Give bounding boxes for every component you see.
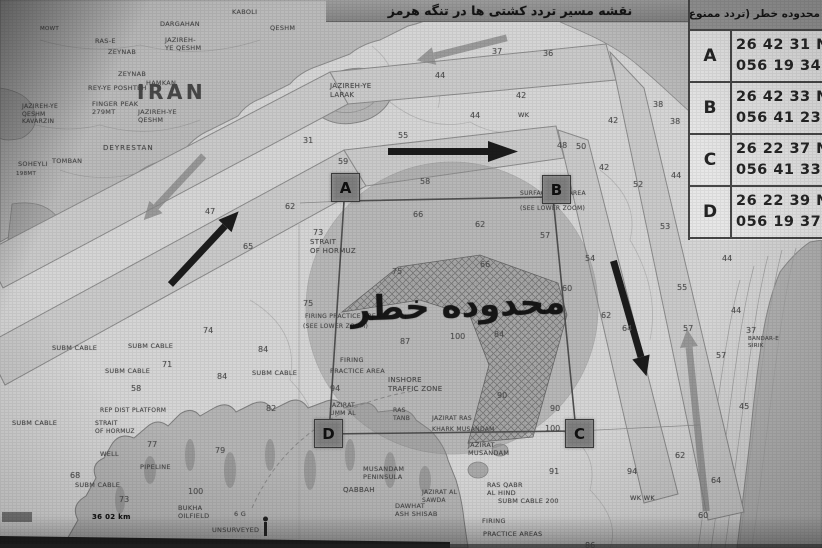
map-label: BUKHA OILFIELD (178, 504, 209, 520)
danger-zone-label: محدوده خطر (347, 282, 568, 330)
coordinates-table-rows: A 26 42 31 N 056 19 34 E B 26 42 33 N 05… (690, 31, 822, 239)
latitude-value: 26 22 37 N (736, 139, 822, 160)
map-label: KHARK MUSANDAM (432, 426, 495, 434)
map-label: JAZIRAT RAS (432, 415, 472, 423)
depth-sounding: 57 (716, 351, 726, 360)
depth-sounding: 62 (675, 451, 685, 460)
depth-sounding: 77 (147, 440, 157, 449)
point-coordinates: 26 22 37 N 056 41 33 E (732, 135, 822, 185)
map-label: 6 G (234, 510, 246, 518)
map-label: JAZIREH-YE LARAK (330, 82, 372, 100)
depth-sounding: 68 (70, 471, 80, 480)
depth-sounding: 58 (420, 177, 430, 186)
depth-sounding: 44 (470, 111, 480, 120)
map-label: 198MT (16, 171, 36, 178)
map-label: WELL (100, 450, 119, 458)
depth-sounding: 62 (285, 202, 295, 211)
depth-sounding: 64 (711, 476, 721, 485)
depth-sounding: 90 (497, 391, 507, 400)
map-label: DARGAHAN (160, 20, 200, 28)
depth-sounding: 71 (162, 360, 172, 369)
nautical-chart-photo: 5958666257737566604762657574848494444244… (0, 0, 822, 548)
map-label: DAWHAT ASH SHISAB (395, 502, 438, 518)
map-label: SUBM CABLE (75, 481, 120, 489)
map-label: SUBM CABLE 200 (498, 497, 559, 505)
depth-sounding: 100 (188, 487, 203, 496)
map-label: SUBM CABLE (12, 419, 57, 427)
depth-sounding: 54 (585, 254, 595, 263)
depth-sounding: 66 (413, 210, 423, 219)
depth-sounding: 47 (205, 207, 215, 216)
depth-sounding: 55 (398, 131, 408, 140)
latitude-value: 26 42 31 N (736, 35, 822, 56)
depth-sounding: 31 (303, 136, 313, 145)
depth-sounding: 42 (516, 91, 526, 100)
point-letter: D (690, 187, 732, 237)
depth-sounding: 87 (400, 337, 410, 346)
map-label: SOHEYLI (18, 160, 48, 168)
map-label: BANDAR-E SIRIK (748, 336, 779, 350)
map-label: JAZIRAT MUSANDAM (468, 441, 509, 457)
depth-sounding: 58 (131, 384, 141, 393)
map-label: SUBM CABLE (128, 342, 173, 350)
coordinates-table-row: D 26 22 39 N 056 19 37 E (690, 187, 822, 239)
coordinates-table: محدوده خطر (تردد ممنوع) A 26 42 31 N 056… (688, 0, 822, 240)
coordinates-table-row: C 26 22 37 N 056 41 33 E (690, 135, 822, 187)
map-label: WK WK (630, 494, 655, 502)
corner-marker: D (314, 419, 343, 448)
latitude-value: 26 22 39 N (736, 191, 822, 212)
map-label: INSHORE TRAFFIC ZONE (388, 376, 442, 394)
map-label: KABOLI (232, 8, 257, 16)
depth-sounding: 64 (622, 324, 632, 333)
map-label: MOWT (40, 26, 59, 33)
coordinates-table-row: B 26 42 33 N 056 41 23 E (690, 83, 822, 135)
depth-sounding: 86 (585, 541, 595, 548)
map-label: SUBM CABLE (252, 369, 297, 377)
depth-sounding: 73 (119, 495, 129, 504)
depth-sounding: 57 (540, 231, 550, 240)
depth-sounding: 94 (627, 467, 637, 476)
depth-sounding: 84 (494, 330, 504, 339)
map-label: QABBAH (343, 486, 375, 495)
depth-sounding: 55 (677, 283, 687, 292)
depth-sounding: 45 (739, 402, 749, 411)
map-label: JAZIREH-YE QESHM (138, 108, 177, 124)
depth-sounding: 38 (670, 117, 680, 126)
depth-sounding: 37 (492, 47, 502, 56)
map-label: QESHM (270, 24, 295, 32)
map-label: SUBM CABLE (105, 367, 150, 375)
map-label: JAZIRAT UMM AL (330, 402, 356, 417)
depth-sounding: 62 (601, 311, 611, 320)
map-label: PIPELINE (140, 463, 171, 471)
depth-sounding: 60 (698, 511, 708, 520)
point-letter: B (690, 83, 732, 133)
map-label: DEYRESTAN (103, 144, 154, 153)
map-label: STRAIT OF HORMUZ (95, 420, 135, 435)
map-label: PRACTICE AREA (330, 367, 385, 375)
map-label: (SEE LOWER ZOOM) (520, 205, 585, 213)
map-label: REY-YE POSHTEH (88, 84, 147, 92)
depth-sounding: 91 (549, 467, 559, 476)
depth-sounding: 44 (731, 306, 741, 315)
corner-marker: C (565, 419, 594, 448)
longitude-value: 056 19 34 E (736, 56, 822, 77)
coordinates-table-header: محدوده خطر (تردد ممنوع) (690, 0, 822, 31)
depth-sounding: 62 (475, 220, 485, 229)
corner-marker: A (331, 173, 360, 202)
depth-sounding: 52 (633, 180, 643, 189)
map-label: RAS TANB (393, 407, 410, 422)
depth-sounding: 44 (722, 254, 732, 263)
depth-sounding: 36 (543, 49, 553, 58)
map-label: ZEYNAB (108, 48, 136, 56)
map-label: WK (518, 111, 529, 119)
longitude-value: 056 41 23 E (736, 108, 822, 129)
map-label: JAZIRAT AL SAWDA (422, 489, 457, 504)
depth-sounding: 100 (545, 424, 560, 433)
depth-sounding: 90 (550, 404, 560, 413)
map-label: FIRING (340, 356, 364, 364)
map-label: JAZIREH-YE QESHM KAVARZIN (22, 103, 58, 126)
depth-sounding: 100 (450, 332, 465, 341)
longitude-value: 056 41 33 E (736, 160, 822, 181)
map-label: MUSANDAM PENINSULA (363, 465, 404, 481)
depth-sounding: 65 (243, 242, 253, 251)
depth-sounding: 73 (313, 228, 323, 237)
map-label: ZEYNAB (118, 70, 146, 78)
depth-sounding: 57 (683, 324, 693, 333)
depth-sounding: 50 (576, 142, 586, 151)
depth-sounding: 38 (653, 100, 663, 109)
map-label: JAZIREH- YE QESHM (165, 36, 201, 52)
depth-sounding: 42 (608, 116, 618, 125)
map-label: REP DIST PLATFORM (100, 407, 166, 415)
depth-sounding: 84 (258, 345, 268, 354)
longitude-value: 056 19 37 E (736, 212, 822, 233)
point-letter: C (690, 135, 732, 185)
map-label: PRACTICE AREAS (483, 530, 543, 538)
map-label: FIRING (482, 517, 506, 525)
map-label: RAS-E (95, 37, 116, 45)
latitude-value: 26 42 33 N (736, 87, 822, 108)
depth-sounding: 82 (266, 404, 276, 413)
depth-sounding: 42 (599, 163, 609, 172)
depth-sounding: 66 (480, 260, 490, 269)
depth-sounding: 84 (217, 372, 227, 381)
point-coordinates: 26 22 39 N 056 19 37 E (732, 187, 822, 237)
depth-sounding: 44 (671, 171, 681, 180)
map-label: UNSURVEYED (212, 526, 259, 534)
map-label: STRAIT OF HORMUZ (310, 238, 356, 256)
depth-sounding: 75 (303, 299, 313, 308)
depth-sounding: 59 (338, 157, 348, 166)
point-letter: A (690, 31, 732, 81)
map-label: FINGER PEAK 279MT (92, 100, 138, 116)
corner-marker: B (542, 175, 571, 204)
point-coordinates: 26 42 31 N 056 19 34 E (732, 31, 822, 81)
map-label: HAMKAN (146, 79, 176, 87)
depth-sounding: 44 (435, 71, 445, 80)
map-label: SUBM CABLE (52, 344, 97, 352)
depth-sounding: 37 (746, 326, 756, 335)
depth-sounding: 94 (330, 384, 340, 393)
depth-sounding: 75 (392, 267, 402, 276)
map-label: RAS QABR AL HIND (487, 481, 523, 497)
depth-sounding: 74 (203, 326, 213, 335)
map-label: TOMBAN (52, 157, 82, 165)
depth-sounding: 79 (215, 446, 225, 455)
coordinates-table-row: A 26 42 31 N 056 19 34 E (690, 31, 822, 83)
depth-sounding: 53 (660, 222, 670, 231)
chart-title-bar: نقشه مسیر تردد کشتی ها در تنگه هرمز (326, 0, 694, 22)
depth-sounding: 48 (557, 141, 567, 150)
point-coordinates: 26 42 33 N 056 41 23 E (732, 83, 822, 133)
map-label: 36 02 km (92, 513, 131, 522)
